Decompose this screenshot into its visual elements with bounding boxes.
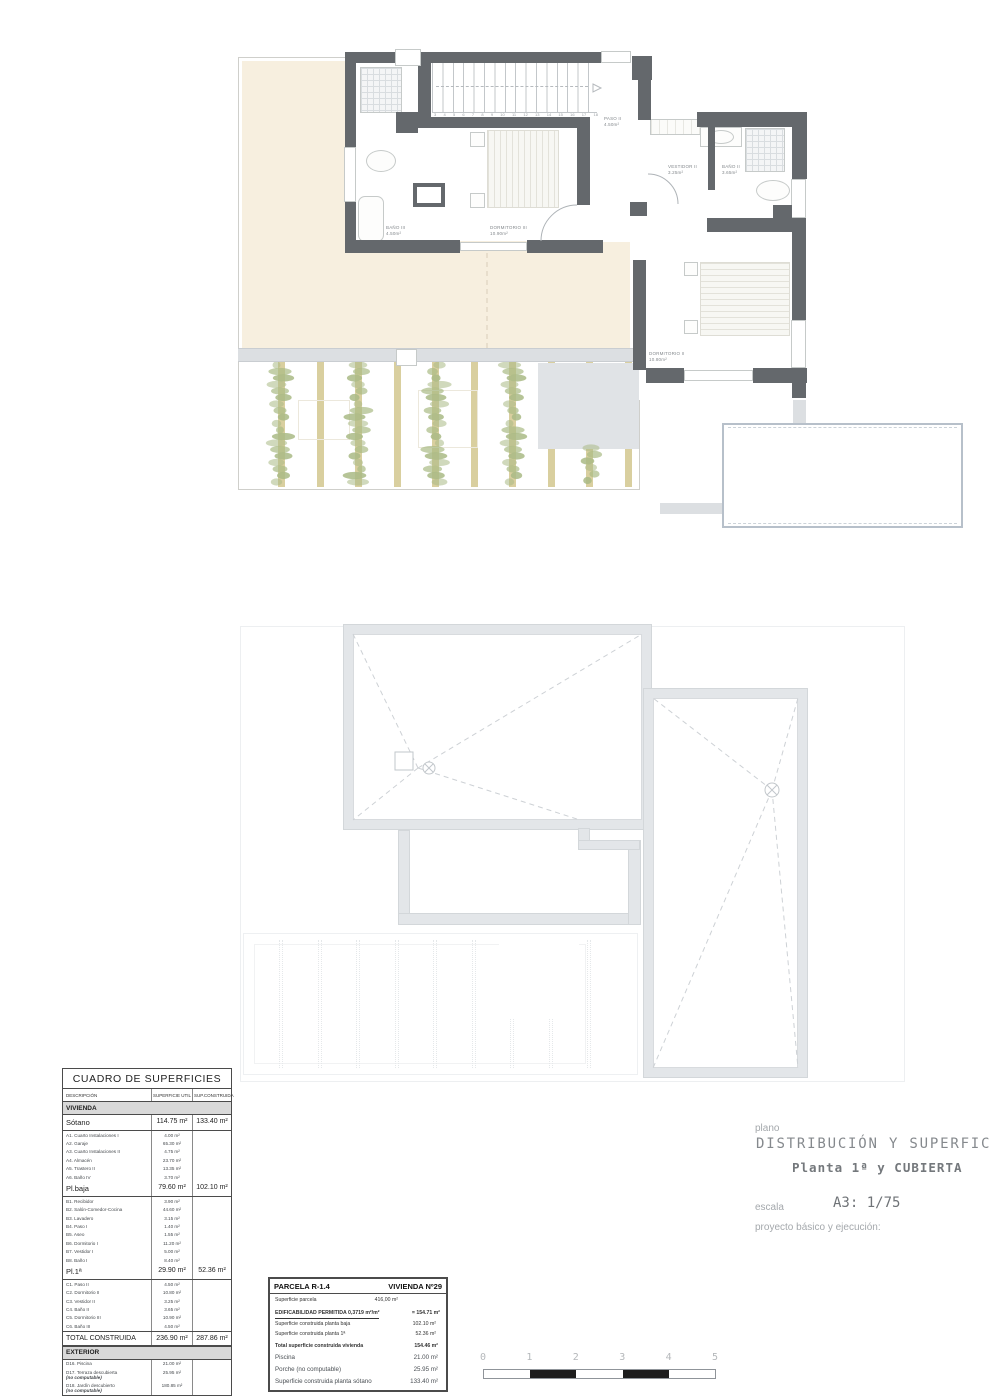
courtyard-parapet [628, 840, 641, 925]
c1: D16. Piscina [63, 1360, 151, 1368]
c1: D17. Terraza descubierta(no computable) [63, 1368, 151, 1381]
table-row: Pl.1ª29.90 m²52.36 m² [63, 1264, 231, 1280]
decor [420, 446, 444, 453]
decor [351, 381, 365, 388]
c2: 25.95 m² [151, 1368, 192, 1381]
decor [511, 472, 522, 479]
c1: C4. Baño II [63, 1305, 151, 1313]
c1: Pl.baja [63, 1181, 151, 1196]
wall-segment [418, 63, 431, 117]
decor [424, 407, 442, 414]
surface-table-header: DESCRIPCIÓN SUPERFICIE UTIL SUP.CONSTRUI… [63, 1089, 231, 1101]
window [395, 49, 421, 66]
plano-label: plano [755, 1123, 779, 1134]
decor [509, 394, 524, 401]
p-lab: Superficie construida planta 1ª [275, 1331, 345, 1339]
wall-projection [793, 400, 806, 423]
surface-table-title: CUADRO DE SUPERFICIES [63, 1069, 231, 1089]
pergola-dotted-line [472, 940, 473, 1068]
decor [427, 472, 445, 479]
c2: 4.50 m² [151, 1280, 192, 1288]
table-row: C1. Paso II4.50 m² [63, 1280, 231, 1288]
decor [505, 387, 521, 394]
decor [273, 362, 281, 369]
parcela-line: Porche (no computable)25.95 m² [270, 1365, 446, 1374]
wall-segment [646, 368, 684, 383]
wall-segment [638, 80, 651, 120]
decor [349, 394, 359, 401]
c1: A6. Baño IV [63, 1173, 151, 1181]
c1: C6. Baño III [63, 1322, 151, 1330]
plot-boundary-left [238, 57, 239, 490]
decor [512, 413, 522, 420]
decor: 4.50m² [604, 122, 621, 128]
c1: A1. Cuarto Instalaciones I [63, 1131, 151, 1139]
c2: 3.90 m² [151, 1197, 192, 1205]
table-row: B5. Aseo1.55 m² [63, 1231, 231, 1239]
table-row: Pl.baja79.60 m²102.10 m² [63, 1181, 231, 1197]
decor [507, 407, 518, 414]
decor [273, 374, 294, 381]
c2: 79.60 m² [151, 1181, 192, 1196]
scale-number: 5 [712, 1352, 718, 1363]
decor [431, 374, 440, 381]
stair-walkline [436, 86, 588, 87]
c3: 52.36 m² [192, 1264, 231, 1279]
decor: 3.25m² [668, 170, 697, 176]
decor [432, 478, 448, 485]
decor [500, 439, 520, 446]
decor [273, 465, 288, 472]
c3 [192, 1322, 231, 1330]
table-row: B1. Recibidor3.90 m² [63, 1197, 231, 1205]
decor [270, 446, 290, 453]
parcela-lines: Superficie parcela416,00 m²EDIFICABILIDA… [270, 1297, 446, 1386]
sheet-subtitle: Planta 1ª y CUBIERTA [792, 1160, 963, 1175]
scale-segment [484, 1370, 530, 1378]
decor [272, 420, 282, 427]
stair-tread-number: 9 [491, 112, 493, 117]
c2: 11.20 m² [151, 1239, 192, 1247]
bed [487, 130, 559, 208]
c1: C3. Vestidor II [63, 1297, 151, 1305]
scale-number: 0 [480, 1352, 486, 1363]
table-row: A4. Almacén23.70 m² [63, 1156, 231, 1164]
wall-segment [753, 368, 807, 383]
c2: 236.90 m² [151, 1332, 192, 1345]
c2: 10.90 m² [151, 1314, 192, 1322]
decor [506, 420, 514, 427]
c2: 4.50 m² [151, 1322, 192, 1330]
c1: C1. Paso II [63, 1280, 151, 1288]
pergola-dotted-line [359, 940, 360, 1068]
parcela-line: Superficie construida planta baja102.10 … [270, 1321, 446, 1329]
table-row: B7. Vestidor I5.00 m² [63, 1248, 231, 1256]
wall-segment [630, 202, 647, 216]
decor [430, 400, 449, 407]
c1: C5. Dormitorio III [63, 1314, 151, 1322]
window [344, 147, 356, 202]
room-label-dormitorio2: DORMITORIO II10.80m² [649, 351, 685, 363]
decor [271, 387, 289, 394]
scale-segment [669, 1370, 715, 1378]
wall-segment [345, 52, 356, 147]
pergola-dotted-line [321, 940, 322, 1068]
parcela-line: Piscina21.00 m² [270, 1353, 446, 1362]
room-label-vestidor2: VESTIDOR II3.25m² [668, 164, 697, 176]
project-type-label: proyecto básico y ejecución: [755, 1222, 881, 1233]
decor [266, 439, 287, 446]
c3: 133.40 m² [192, 1115, 231, 1130]
scale-segment [576, 1370, 622, 1378]
nightstand [684, 320, 698, 334]
decor [347, 478, 369, 485]
stair-tread-number: 4 [443, 112, 445, 117]
window [460, 242, 527, 251]
wall-segment [708, 115, 715, 190]
table-row: C4. Baño II3.65 m² [63, 1305, 231, 1313]
decor [356, 387, 368, 394]
table-row: D16. Piscina21.00 m² [63, 1360, 231, 1368]
p-lab: Total superficie construida vivienda [275, 1343, 363, 1351]
decor [426, 426, 438, 433]
c2: 4.00 m² [151, 1131, 192, 1139]
pergola-roof-dots [243, 933, 638, 1075]
decor [343, 472, 367, 479]
decor [349, 362, 368, 369]
pool-below [722, 423, 963, 528]
p-lab: Superficie parcela [275, 1297, 317, 1305]
c3 [192, 1131, 231, 1139]
shower [360, 67, 402, 113]
toilet [366, 150, 396, 172]
note: (no computable) [66, 1388, 149, 1393]
wall-segment [527, 240, 603, 253]
decor [344, 413, 366, 420]
c3 [192, 1222, 231, 1230]
c2: 1.40 m² [151, 1222, 192, 1230]
paso-interior [603, 60, 630, 242]
table-section-band: EXTERIOR [63, 1346, 231, 1360]
table-row: B8. Baño I8.40 m² [63, 1256, 231, 1264]
bathtub [358, 196, 384, 242]
p-lab: Porche (no computable) [275, 1365, 341, 1374]
stair-tread-number: 14 [547, 112, 551, 117]
window [791, 179, 806, 218]
nightstand [470, 132, 485, 147]
wall-segment [418, 117, 590, 128]
c1: A5. Trastero II [63, 1165, 151, 1173]
pergola-dotted-line [395, 940, 396, 1068]
p-val: 416,00 m² [375, 1297, 398, 1305]
decor [271, 478, 282, 485]
decor [278, 413, 289, 420]
decor [433, 362, 445, 369]
courtyard-parapet [398, 830, 410, 925]
scale-segment [623, 1370, 669, 1378]
stair-tread-number: 17 [582, 112, 586, 117]
decor [268, 368, 291, 375]
parcela-title-row: PARCELA R-1.4 VIVIENDA Nº29 [270, 1279, 446, 1294]
c3 [192, 1206, 231, 1214]
stair-tread-number: 16 [570, 112, 574, 117]
courtyard-parapet [578, 840, 640, 850]
c3 [192, 1289, 231, 1297]
decor [275, 452, 293, 459]
table-row: Sótano114.75 m²133.40 m² [63, 1115, 231, 1131]
nightstand [684, 262, 698, 276]
c3 [192, 1368, 231, 1381]
c3 [192, 1197, 231, 1205]
decor [268, 459, 284, 466]
decor: 4.50m² [386, 231, 405, 237]
decor [353, 459, 363, 466]
c2: 13.35 m² [151, 1165, 192, 1173]
downspout-box [396, 349, 417, 366]
decor: SUPERFICIE UTIL [151, 1089, 192, 1101]
c2: 8.40 m² [151, 1256, 192, 1264]
table-row: A6. Baño IV3.70 m² [63, 1173, 231, 1181]
decor [583, 444, 600, 451]
room-label-bano2: BAÑO II3.65m² [722, 164, 740, 176]
stair-tread-number: 13 [535, 112, 539, 117]
table-row: C6. Baño III4.50 m² [63, 1322, 231, 1330]
room-label-dormitorio3: DORMITORIO III10.90m² [490, 225, 527, 237]
decor: 10.90m² [490, 231, 527, 237]
room-label-paso2: PASO II4.50m² [604, 116, 621, 128]
surface-table: CUADRO DE SUPERFICIES DESCRIPCIÓN SUPERF… [62, 1068, 232, 1396]
p-lab: EDIFICABILIDAD PERMITIDA 0,3719 m²/m² [275, 1310, 379, 1319]
pergola-dotted-line [356, 940, 357, 1068]
left-roof-surface [353, 634, 642, 820]
c2: 21.00 m² [151, 1360, 192, 1368]
c2: 4.75 m² [151, 1148, 192, 1156]
c2: 3.25 m² [151, 1297, 192, 1305]
table-row: C3. Vestidor II3.25 m² [63, 1297, 231, 1305]
decor [426, 394, 447, 401]
decor [357, 465, 366, 472]
c2: 5.00 m² [151, 1248, 192, 1256]
wall-segment [792, 218, 806, 320]
plants-illustration [243, 362, 639, 487]
decor [427, 381, 451, 388]
decor [585, 464, 597, 471]
decor: 10.80m² [649, 357, 685, 363]
c1: B5. Aseo [63, 1231, 151, 1239]
c2: 29.90 m² [151, 1264, 192, 1279]
p-val: 102.10 m² [413, 1321, 436, 1329]
pergola-dotted-line [433, 940, 434, 1068]
wall-segment [396, 112, 418, 133]
decor [432, 420, 446, 427]
window [791, 320, 806, 368]
scale-number: 4 [666, 1352, 672, 1363]
c2: 1.55 m² [151, 1231, 192, 1239]
escala-label: escala [755, 1202, 784, 1213]
note: (no computable) [66, 1375, 149, 1380]
stair-tread-number: 8 [481, 112, 483, 117]
c3 [192, 1256, 231, 1264]
nightstand [470, 193, 485, 208]
parcela-box: PARCELA R-1.4 VIVIENDA Nº29 Superficie p… [268, 1277, 448, 1392]
decor [508, 452, 524, 459]
wall-segment [633, 260, 646, 370]
c2: 180.85 m² [151, 1381, 192, 1394]
decor [350, 439, 365, 446]
c1: B7. Vestidor I [63, 1248, 151, 1256]
decor [427, 368, 438, 375]
parcela-line: Total superficie construida vivienda154.… [270, 1343, 446, 1351]
stair-numbers: 3456789101112131415161718 [434, 112, 598, 117]
table-row: B3. Lavadero3.15 m² [63, 1214, 231, 1222]
stair-tread-number: 12 [523, 112, 527, 117]
c1: Pl.1ª [63, 1264, 151, 1279]
stair-tread-number: 6 [462, 112, 464, 117]
wall-segment [707, 218, 792, 232]
pergola-dotted-line [587, 940, 588, 1068]
wall-projection [660, 503, 722, 514]
scale-bar [483, 1369, 716, 1379]
stair-tread-number: 11 [512, 112, 516, 117]
c1: Sótano [63, 1115, 151, 1130]
wall-segment [345, 240, 460, 253]
table-row: D17. Terraza descubierta(no computable)2… [63, 1368, 231, 1381]
wardrobe [413, 183, 445, 207]
scale-bar-numbers: 012345 [483, 1352, 723, 1364]
c2: 65.30 m² [151, 1139, 192, 1147]
c3 [192, 1173, 231, 1181]
c1: D18. Jardín descubierto(no computable) [63, 1381, 151, 1394]
c1: B8. Baño I [63, 1256, 151, 1264]
decor [350, 407, 374, 414]
table-row: B4. Paso I1.40 m² [63, 1222, 231, 1230]
decor [506, 433, 527, 440]
scale-segment [530, 1370, 576, 1378]
stair-tread-number: 18 [593, 112, 597, 117]
decor [267, 381, 287, 388]
decor [352, 426, 371, 433]
table-row: B2. Salón-Comedor-Cocina44.60 m² [63, 1206, 231, 1214]
table-row: A3. Cuarto Instalaciones II4.75 m² [63, 1148, 231, 1156]
table-row: B6. Dormitorio I11.20 m² [63, 1239, 231, 1247]
p-val: = 154.71 m² [412, 1310, 440, 1319]
c2: 44.60 m² [151, 1206, 192, 1214]
escala-value: A3: 1/75 [833, 1195, 900, 1211]
p-lab: Piscina [275, 1353, 295, 1362]
window [601, 51, 631, 63]
c2: 3.65 m² [151, 1305, 192, 1313]
p-lab: Superficie construida planta sótano [275, 1377, 372, 1386]
roof-edge-band [238, 348, 640, 362]
c2: 3.15 m² [151, 1214, 192, 1222]
table-row: TOTAL CONSTRUIDA236.90 m²287.86 m² [63, 1331, 231, 1346]
pergola-dotted-line [436, 940, 437, 1068]
c1: B2. Salón-Comedor-Cocina [63, 1206, 151, 1214]
c3 [192, 1248, 231, 1256]
wall-segment [632, 56, 652, 80]
c1: C2. Dormitorio II [63, 1289, 151, 1297]
decor [428, 413, 444, 420]
p-lab: Superficie construida planta baja [275, 1321, 350, 1329]
c3 [192, 1239, 231, 1247]
parcela-id: PARCELA R-1.4 [274, 1282, 330, 1291]
decor [505, 478, 515, 485]
vivienda-id: VIVIENDA Nº29 [388, 1282, 442, 1291]
c3: 102.10 m² [192, 1181, 231, 1196]
decor [346, 433, 363, 440]
decor [277, 472, 290, 479]
decor [349, 452, 361, 459]
c3: 287.86 m² [192, 1332, 231, 1345]
decor [354, 400, 363, 407]
table-row: C2. Dormitorio II10.80 m² [63, 1289, 231, 1297]
decor: 3.65m² [722, 170, 740, 176]
c1: B1. Recibidor [63, 1197, 151, 1205]
decor [501, 426, 524, 433]
decor [587, 451, 602, 458]
decor [431, 433, 442, 440]
window [684, 370, 753, 381]
stair-tread-number: 10 [500, 112, 504, 117]
decor [504, 446, 522, 453]
c3 [192, 1156, 231, 1164]
wall-segment [792, 115, 807, 179]
decor [502, 459, 517, 466]
decor [581, 457, 595, 464]
c1: B3. Lavadero [63, 1214, 151, 1222]
bed [700, 262, 790, 336]
surface-table-body: VIVIENDASótano114.75 m²133.40 m²A1. Cuar… [63, 1101, 231, 1395]
p-val: 52.36 m² [416, 1331, 436, 1339]
table-row: A2. Garaje65.30 m² [63, 1139, 231, 1147]
stair-tread-number: 7 [472, 112, 474, 117]
c3 [192, 1381, 231, 1394]
p-val: 154.46 m² [414, 1343, 438, 1351]
right-roof-surface [653, 698, 798, 1068]
decor [275, 394, 291, 401]
p-val: 21.00 m² [414, 1353, 438, 1362]
decor [421, 387, 444, 394]
pergola-dotted-line [318, 940, 319, 1068]
stair-tread-number: 15 [558, 112, 562, 117]
wall-segment [345, 52, 603, 63]
plot-boundary-top [238, 57, 346, 58]
c3 [192, 1297, 231, 1305]
decor [353, 368, 370, 375]
c2: 10.80 m² [151, 1289, 192, 1297]
pergola-dotted-line [475, 940, 476, 1068]
table-row: C5. Dormitorio III10.90 m² [63, 1314, 231, 1322]
c3 [192, 1165, 231, 1173]
table-row: A5. Trastero II13.35 m² [63, 1165, 231, 1173]
c3 [192, 1139, 231, 1147]
decor [498, 362, 521, 369]
c1: A4. Almacén [63, 1156, 151, 1164]
pergola-area [243, 362, 639, 487]
decor: DESCRIPCIÓN [63, 1089, 151, 1101]
decor: SUP.CONSTRUIDA [192, 1089, 231, 1101]
pergola-dotted-line [279, 940, 280, 1068]
table-section-band: VIVIENDA [63, 1101, 231, 1115]
c1: TOTAL CONSTRUIDA [63, 1332, 151, 1345]
c1: B4. Paso I [63, 1222, 151, 1230]
drawing-sheet: 3456789101112131415161718 [0, 0, 989, 1400]
parcela-line: EDIFICABILIDAD PERMITIDA 0,3719 m²/m²= 1… [270, 1310, 446, 1319]
table-row: D18. Jardín descubierto(no computable)18… [63, 1381, 231, 1394]
wall-segment [577, 117, 590, 205]
c3 [192, 1214, 231, 1222]
c2: 3.70 m² [151, 1173, 192, 1181]
